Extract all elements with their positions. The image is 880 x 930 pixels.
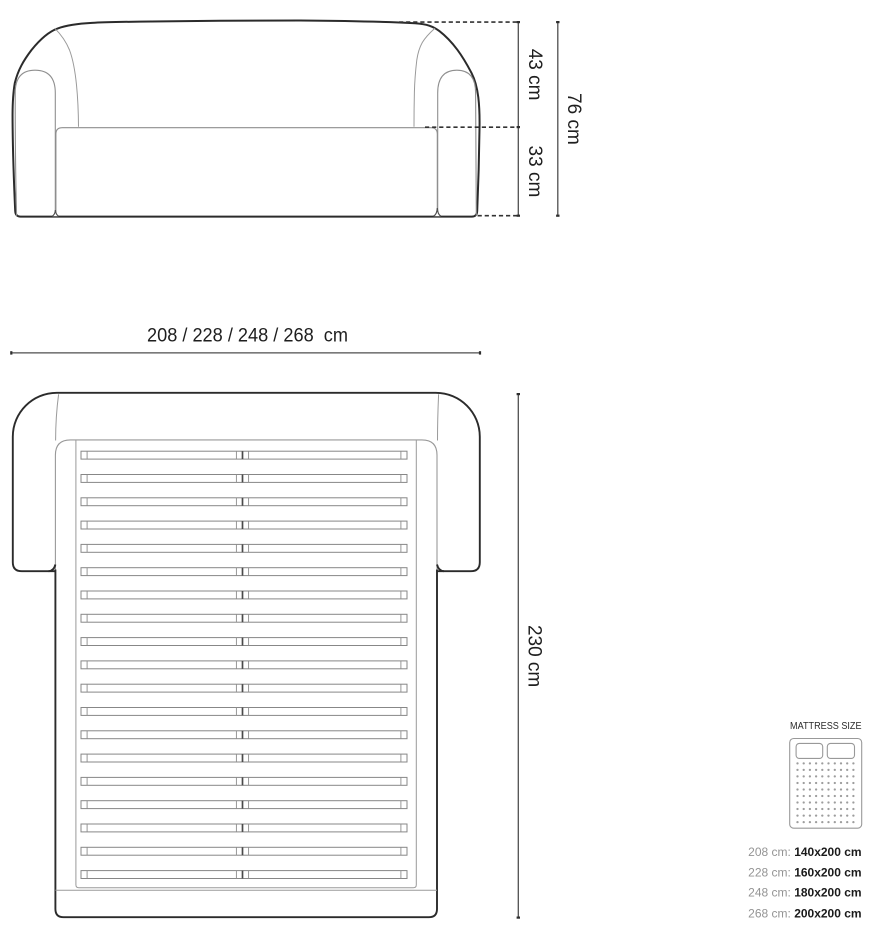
svg-text:43 cm: 43 cm [524,49,545,101]
svg-text:268 cm: 200x200 cm: 268 cm: 200x200 cm [748,906,861,920]
svg-text:76 cm: 76 cm [563,93,584,145]
svg-text:228 cm: 160x200 cm: 228 cm: 160x200 cm [748,866,861,880]
svg-text:208 cm: 140x200 cm: 208 cm: 140x200 cm [748,845,861,859]
svg-text:230 cm: 230 cm [524,625,545,687]
svg-text:248 cm: 180x200 cm: 248 cm: 180x200 cm [748,886,861,900]
svg-text:33 cm: 33 cm [524,146,545,198]
svg-text:208 / 228 / 248 / 268 cm: 208 / 228 / 248 / 268 cm [147,325,348,346]
svg-text:MATTRESS SIZE: MATTRESS SIZE [790,721,862,732]
